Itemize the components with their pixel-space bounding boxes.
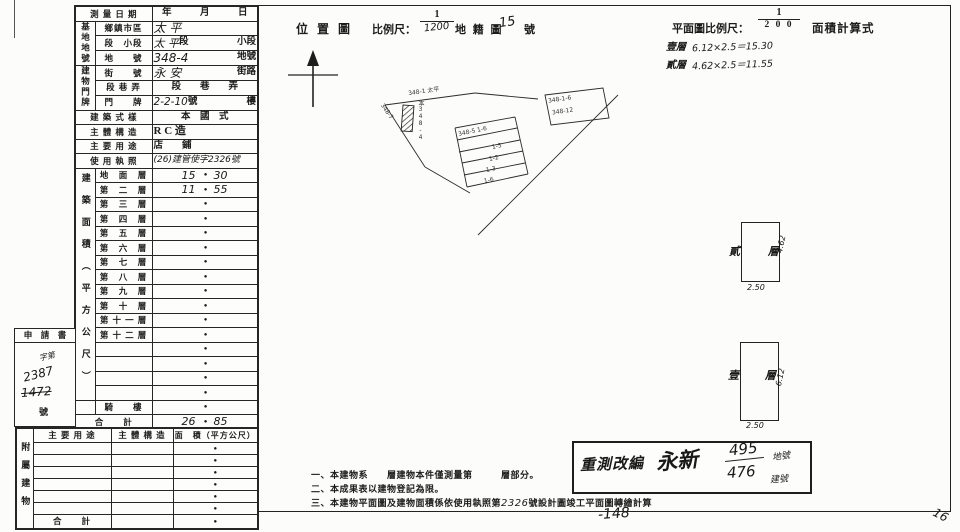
row-license: 使 用 執 照 (26)建管使字2326號 bbox=[75, 154, 258, 169]
row-street: 建物門牌 街 號 永 安街路 bbox=[75, 66, 258, 81]
note-3-suffix: 號設計圖竣工平面圖轉繪計算 bbox=[528, 498, 652, 508]
annex-row: ● bbox=[16, 443, 258, 455]
floor-label bbox=[95, 342, 152, 357]
annex-header-row: 附屬建物 主 要 用 途 主 體 構 造 面 積（平方公尺） bbox=[16, 428, 258, 443]
floor-area-value: ● bbox=[152, 270, 258, 285]
structure-value: R C 造 bbox=[152, 125, 258, 140]
street-label: 街 號 bbox=[95, 66, 152, 81]
annex-area-header: 面 積（平方公尺） bbox=[173, 428, 258, 443]
license-value: (26)建管使字2326號 bbox=[152, 154, 258, 169]
cadastral-sheet-suffix: 號 bbox=[524, 21, 535, 37]
row-floor-12: 第 十 二 層● bbox=[75, 328, 258, 343]
row-door-plate: 門 牌 2-2-10號樓 bbox=[75, 95, 258, 110]
first-floor-width-dimension: 2.50 bbox=[746, 421, 764, 430]
row-arcade: 騎 樓 ● bbox=[75, 400, 258, 415]
row-floor-blank: ● bbox=[75, 357, 258, 372]
floor-area-value: ● bbox=[152, 386, 258, 401]
floor-area-value: 11●55 bbox=[152, 183, 258, 198]
building-survey-main-table: 測 量 日 期 年 月 日 基地地號 鄉鎮市區 太 平 段 小段 太 平段小段 … bbox=[74, 5, 259, 431]
floor-label bbox=[95, 371, 152, 386]
annex-area-cell: ● bbox=[173, 455, 258, 467]
applicant-receipt-number-1: 2387 bbox=[22, 364, 55, 385]
row-floor-blank: ● bbox=[75, 386, 258, 401]
applicant-receipt-prefix: 字第 bbox=[38, 349, 56, 363]
style-value: 本 國 式 bbox=[152, 110, 258, 125]
district-value: 太 平 bbox=[152, 21, 258, 36]
floor-area-value: ● bbox=[152, 226, 258, 241]
stamp-building-suffix: 建號 bbox=[770, 471, 789, 485]
plan-scale-denominator: 2 0 0 bbox=[765, 21, 794, 31]
stamp-lot-number-handwritten: 495 bbox=[723, 438, 764, 462]
usage-value: 店 鋪 bbox=[152, 139, 258, 154]
floor-area-value: 15●30 bbox=[152, 168, 258, 183]
row-floor-4: 第 四 層● bbox=[75, 212, 258, 227]
location-map-scale-fraction: 1 1200 bbox=[420, 10, 454, 33]
floor-label: 第 二 層 bbox=[95, 183, 152, 198]
row-floor-blank: ● bbox=[75, 342, 258, 357]
applicant-number-suffix: 號 bbox=[39, 405, 48, 418]
stamp-section-name-handwritten: 永新 bbox=[655, 443, 699, 477]
floor-area-value: ● bbox=[152, 313, 258, 328]
row-floor-9: 第 九 層● bbox=[75, 284, 258, 299]
floor-label: 第 十 層 bbox=[95, 299, 152, 314]
annex-row: ● bbox=[16, 503, 258, 515]
section-value: 太 平段小段 bbox=[152, 36, 258, 51]
lot-label: 地 號 bbox=[95, 51, 152, 66]
row-survey-date: 測 量 日 期 年 月 日 bbox=[75, 6, 258, 21]
north-arrow bbox=[280, 45, 350, 115]
page-edge-line bbox=[14, 0, 15, 38]
annex-area-cell: ● bbox=[173, 503, 258, 515]
arcade-value: ● bbox=[152, 400, 258, 415]
plan-scale-fraction: 1 2 0 0 bbox=[758, 8, 800, 31]
row-lane: 段 巷 弄 段 巷 弄 bbox=[75, 80, 258, 95]
row-section: 段 小段 太 平段小段 bbox=[75, 36, 258, 51]
section-label: 段 小段 bbox=[95, 36, 152, 51]
applicant-box-title: 申 請 書 bbox=[15, 329, 75, 343]
note-line-1: 一、本建物系 層建物本件僅測量第 層部分。 bbox=[311, 468, 539, 481]
stamp-building-number-handwritten: 476 bbox=[721, 462, 761, 483]
row-floor-8: 第 八 層● bbox=[75, 270, 258, 285]
door-label: 門 牌 bbox=[95, 95, 152, 110]
second-floor-width-dimension: 2.50 bbox=[747, 283, 765, 292]
row-floor-11: 第 十 一 層● bbox=[75, 313, 258, 328]
calc-line-1-formula: 6.12×2.5＝15.30 bbox=[692, 38, 773, 55]
row-floor-3: 第 三 層● bbox=[75, 197, 258, 212]
margin-number-handwritten: -148 bbox=[597, 505, 630, 523]
annex-row: ● bbox=[16, 455, 258, 467]
applicant-box: 申 請 書 字第 2387 1472 號 bbox=[14, 328, 76, 427]
lane-label: 段 巷 弄 bbox=[95, 80, 152, 95]
calc-line-2-formula: 4.62×2.5＝11.55 bbox=[692, 56, 773, 73]
floor-label: 第 五 層 bbox=[95, 226, 152, 241]
location-map-title: 位 置 圖 bbox=[296, 20, 353, 37]
annex-side-label: 附屬建物 bbox=[16, 428, 33, 529]
floor-area-value: ● bbox=[152, 299, 258, 314]
floor-label: 第 三 層 bbox=[95, 197, 152, 212]
applicant-receipt-number-2: 1472 bbox=[21, 384, 52, 400]
subject-building-hatched bbox=[401, 105, 414, 132]
annex-total-label: 合 計 bbox=[33, 515, 111, 530]
lot-value: 348-4地號 bbox=[152, 51, 258, 66]
door-value: 2-2-10號樓 bbox=[152, 95, 258, 110]
row-lot-number: 地 號 348-4地號 bbox=[75, 51, 258, 66]
row-usage: 主 要 用 途 店 鋪 bbox=[75, 139, 258, 154]
floor-label: 第 七 層 bbox=[95, 255, 152, 270]
row-floor-5: 第 五 層● bbox=[75, 226, 258, 241]
note-3-license-number-handwritten: 2326 bbox=[501, 498, 528, 509]
district-label: 鄉鎮市區 bbox=[95, 21, 152, 36]
floor-label: 第 九 層 bbox=[95, 284, 152, 299]
annex-area-cell: ● bbox=[173, 443, 258, 455]
floor-area-value: ● bbox=[152, 342, 258, 357]
plan-scale-label: 平面圖比例尺： bbox=[672, 20, 749, 36]
group-building-area: 建築面積（平方公尺） bbox=[75, 168, 95, 400]
lane-value: 段 巷 弄 bbox=[152, 80, 258, 95]
cadastral-sheet-number-handwritten: 15 bbox=[498, 14, 516, 31]
location-map-scale-label: 比例尺： bbox=[372, 21, 416, 37]
usage-label: 主 要 用 途 bbox=[75, 139, 152, 154]
floor-label: 第 十 二 層 bbox=[95, 328, 152, 343]
annex-area-cell: ● bbox=[173, 467, 258, 479]
annex-area-cell: ● bbox=[173, 479, 258, 491]
row-floor-7: 第 七 層● bbox=[75, 255, 258, 270]
row-style: 建 築 式 樣 本 國 式 bbox=[75, 110, 258, 125]
floor-area-value: ● bbox=[152, 328, 258, 343]
scale-numerator: 1 bbox=[435, 10, 440, 20]
annex-total-area-cell: ● bbox=[173, 515, 258, 530]
floor-area-value: ● bbox=[152, 212, 258, 227]
row-floor-2: 第 二 層11●55 bbox=[75, 183, 258, 198]
row-floor-10: 第 十 層● bbox=[75, 299, 258, 314]
group-site-lot: 基地地號 bbox=[75, 21, 95, 66]
floor-label bbox=[95, 386, 152, 401]
structure-label: 主 體 構 造 bbox=[75, 125, 152, 140]
map-subject-lot-label: 本348-4 bbox=[416, 100, 425, 141]
floor-area-value: ● bbox=[152, 357, 258, 372]
floor-area-value: ● bbox=[152, 371, 258, 386]
survey-date-value: 年 月 日 bbox=[152, 6, 258, 21]
area-calculation-title: 面積計算式 bbox=[812, 20, 875, 36]
street-value: 永 安街路 bbox=[152, 66, 258, 81]
row-structure: 主 體 構 造 R C 造 bbox=[75, 125, 258, 140]
stamp-lot-suffix: 地號 bbox=[771, 448, 791, 463]
style-label: 建 築 式 樣 bbox=[75, 110, 152, 125]
group-empty-cell bbox=[75, 400, 95, 415]
floor-area-value: ● bbox=[152, 255, 258, 270]
annex-row: ● bbox=[16, 467, 258, 479]
note-3-prefix: 三、本建物平面圖及建物面積係依使用執照第 bbox=[311, 498, 501, 508]
plan-scale-numerator: 1 bbox=[777, 8, 782, 18]
survey-date-label: 測 量 日 期 bbox=[75, 6, 152, 21]
attached-building-table: 附屬建物 主 要 用 途 主 體 構 造 面 積（平方公尺） ● ● ● ● ●… bbox=[15, 427, 259, 530]
annex-area-cell: ● bbox=[173, 491, 258, 503]
calc-line-1-floor: 壹層 bbox=[666, 38, 686, 53]
cadastral-map-label: 地 籍 圖 bbox=[455, 21, 504, 37]
license-label: 使 用 執 照 bbox=[75, 154, 152, 169]
floor-area-value: ● bbox=[152, 197, 258, 212]
annex-total-row: 合 計 ● bbox=[16, 515, 258, 530]
row-floor-blank: ● bbox=[75, 371, 258, 386]
row-district: 基地地號 鄉鎮市區 太 平 bbox=[75, 21, 258, 36]
row-floor-ground: 建築面積（平方公尺） 地 面 層 15●30 bbox=[75, 168, 258, 183]
annex-row: ● bbox=[16, 491, 258, 503]
map-plan-region bbox=[257, 5, 951, 512]
annex-structure-header: 主 體 構 造 bbox=[111, 428, 173, 443]
scale-denominator-handwritten: 1200 bbox=[424, 22, 450, 35]
row-floor-6: 第 六 層● bbox=[75, 241, 258, 256]
floor-area-value: ● bbox=[152, 241, 258, 256]
annex-row: ● bbox=[16, 479, 258, 491]
floor-area-value: ● bbox=[152, 284, 258, 299]
floor-label: 第 四 層 bbox=[95, 212, 152, 227]
stamp-title: 重測改編 bbox=[580, 452, 645, 475]
floor-label: 第 六 層 bbox=[95, 241, 152, 256]
floor-label: 第 十 一 層 bbox=[95, 313, 152, 328]
arcade-label: 騎 樓 bbox=[95, 400, 152, 415]
group-door-plate: 建物門牌 bbox=[75, 66, 95, 111]
resurvey-stamp-box: 重測改編 永新 495 476 地號 建號 bbox=[572, 441, 812, 494]
calc-line-2-floor: 貳層 bbox=[666, 56, 686, 71]
annex-usage-header: 主 要 用 途 bbox=[33, 428, 111, 443]
note-line-2: 二、本成果表以建物登記為限。 bbox=[311, 482, 444, 495]
floor-label bbox=[95, 357, 152, 372]
floor-label: 地 面 層 bbox=[95, 168, 152, 183]
floor-label: 第 八 層 bbox=[95, 270, 152, 285]
scanned-building-survey-form: { "sheet": { "decimal_dot": "●" }, "main… bbox=[0, 0, 960, 532]
